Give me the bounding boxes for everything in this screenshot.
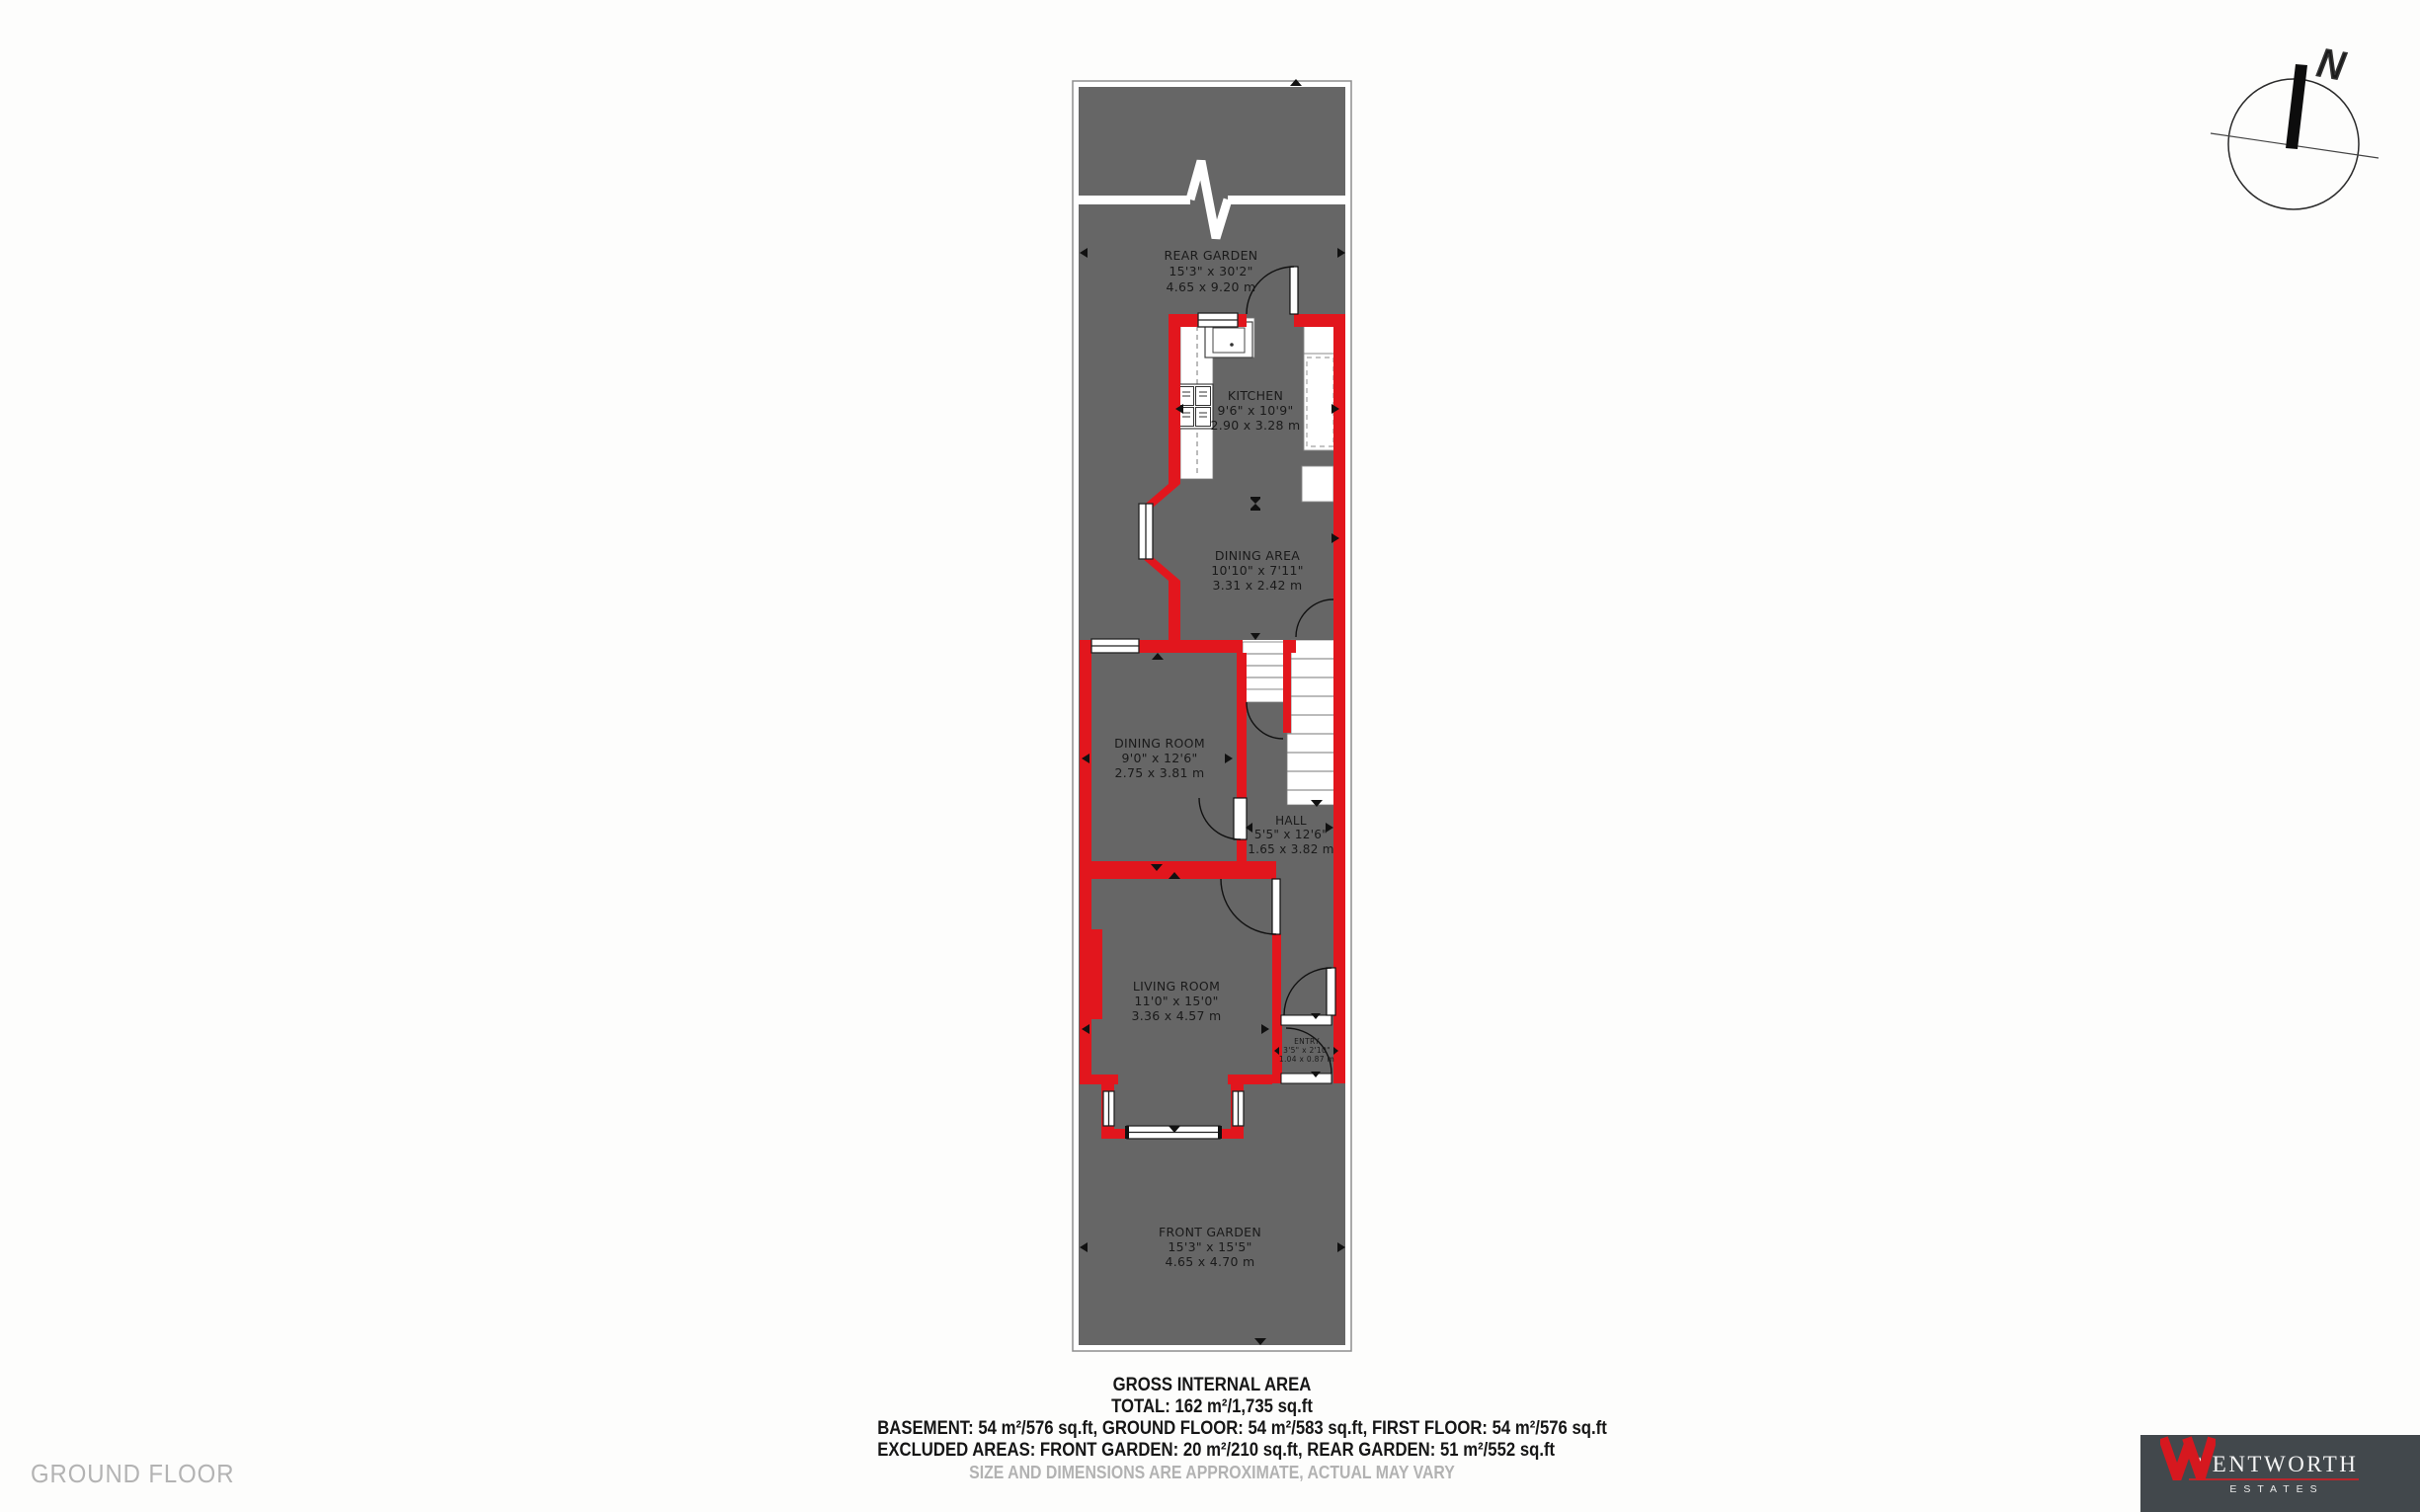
svg-text:3.36 x 4.57 m: 3.36 x 4.57 m [1131,1008,1221,1023]
entry-threshold-inner [1281,1015,1331,1025]
svg-text:1.04 x 0.87 m: 1.04 x 0.87 m [1279,1055,1334,1064]
bay-window-right [1233,1091,1244,1126]
front-garden-label: FRONT GARDEN 15'3" x 15'5" 4.65 x 4.70 m [1159,1225,1261,1269]
area-summary: GROSS INTERNAL AREA TOTAL: 162 m²/1,735 … [877,1375,1547,1483]
dining-room-window [1091,639,1139,653]
compass: N [2211,41,2379,209]
brand-sub: ESTATES [2222,1483,2323,1495]
svg-text:2.75 x 3.81 m: 2.75 x 3.81 m [1114,765,1204,780]
svg-text:15'3" x 30'2": 15'3" x 30'2" [1169,264,1252,279]
inner-hall-door-leaf [1327,968,1335,1015]
living-room-door-leaf [1272,879,1280,934]
svg-text:9'0" x 12'6": 9'0" x 12'6" [1121,751,1197,765]
entry-threshold-front [1281,1074,1331,1083]
summary-title: GROSS INTERNAL AREA [877,1375,1547,1396]
kitchen-unit [1302,466,1333,502]
svg-text:3'5" x 2'10": 3'5" x 2'10" [1283,1046,1331,1055]
floor-plan-graphic: REAR GARDEN 15'3" x 30'2" 4.65 x 9.20 m … [0,0,2420,1512]
wentworth-logo: WENTWORTH ESTATES [2140,1435,2420,1512]
kitchen-window [1198,313,1238,327]
north-needle-icon [2286,64,2307,149]
living-room-label: LIVING ROOM 11'0" x 15'0" 3.36 x 4.57 m [1131,979,1221,1023]
floorplan-page: REAR GARDEN 15'3" x 30'2" 4.65 x 9.20 m … [0,0,2420,1512]
kitchen-tall-unit [1304,319,1336,450]
rear-garden-label: REAR GARDEN 15'3" x 30'2" 4.65 x 9.20 m [1165,248,1258,294]
svg-text:2.90 x 3.28 m: 2.90 x 3.28 m [1210,418,1300,433]
svg-text:DINING ROOM: DINING ROOM [1114,736,1205,751]
svg-text:9'6" x 10'9": 9'6" x 10'9" [1217,403,1293,418]
svg-text:ENTRY: ENTRY [1294,1037,1320,1046]
north-label: N [2314,41,2350,89]
svg-text:REAR GARDEN: REAR GARDEN [1165,248,1258,263]
dining-area-window [1139,504,1153,559]
svg-text:4.65 x 9.20 m: 4.65 x 9.20 m [1166,279,1255,294]
svg-text:DINING AREA: DINING AREA [1215,548,1300,563]
dining-room-door-leaf [1234,798,1247,839]
summary-excluded: EXCLUDED AREAS: FRONT GARDEN: 20 m²/210 … [877,1440,1547,1462]
svg-text:15'3" x 15'5": 15'3" x 15'5" [1168,1239,1251,1254]
w-mark-icon [2160,1435,2216,1480]
svg-text:LIVING ROOM: LIVING ROOM [1133,979,1220,994]
floor-title: GROUND FLOOR [31,1459,234,1489]
svg-text:FRONT GARDEN: FRONT GARDEN [1159,1225,1261,1239]
svg-text:HALL: HALL [1275,814,1307,828]
rear-door-leaf [1290,267,1298,314]
svg-text:KITCHEN: KITCHEN [1228,388,1283,403]
bay-window-left [1103,1091,1114,1126]
summary-floors: BASEMENT: 54 m²/576 sq.ft, GROUND FLOOR:… [877,1418,1547,1440]
dining-area-label: DINING AREA 10'10" x 7'11" 3.31 x 2.42 m [1211,548,1304,593]
svg-text:11'0" x 15'0": 11'0" x 15'0" [1134,994,1218,1008]
svg-text:10'10" x 7'11": 10'10" x 7'11" [1211,563,1304,578]
svg-text:3.31 x 2.42 m: 3.31 x 2.42 m [1212,578,1302,593]
svg-text:5'5" x 12'6": 5'5" x 12'6" [1254,828,1328,841]
summary-total: TOTAL: 162 m²/1,735 sq.ft [877,1396,1547,1418]
dining-room-label: DINING ROOM 9'0" x 12'6" 2.75 x 3.81 m [1114,736,1205,780]
svg-text:4.65 x 4.70 m: 4.65 x 4.70 m [1165,1254,1254,1269]
svg-text:1.65 x 3.82 m: 1.65 x 3.82 m [1248,842,1334,856]
summary-disclaimer: SIZE AND DIMENSIONS ARE APPROXIMATE, ACT… [877,1462,1547,1483]
